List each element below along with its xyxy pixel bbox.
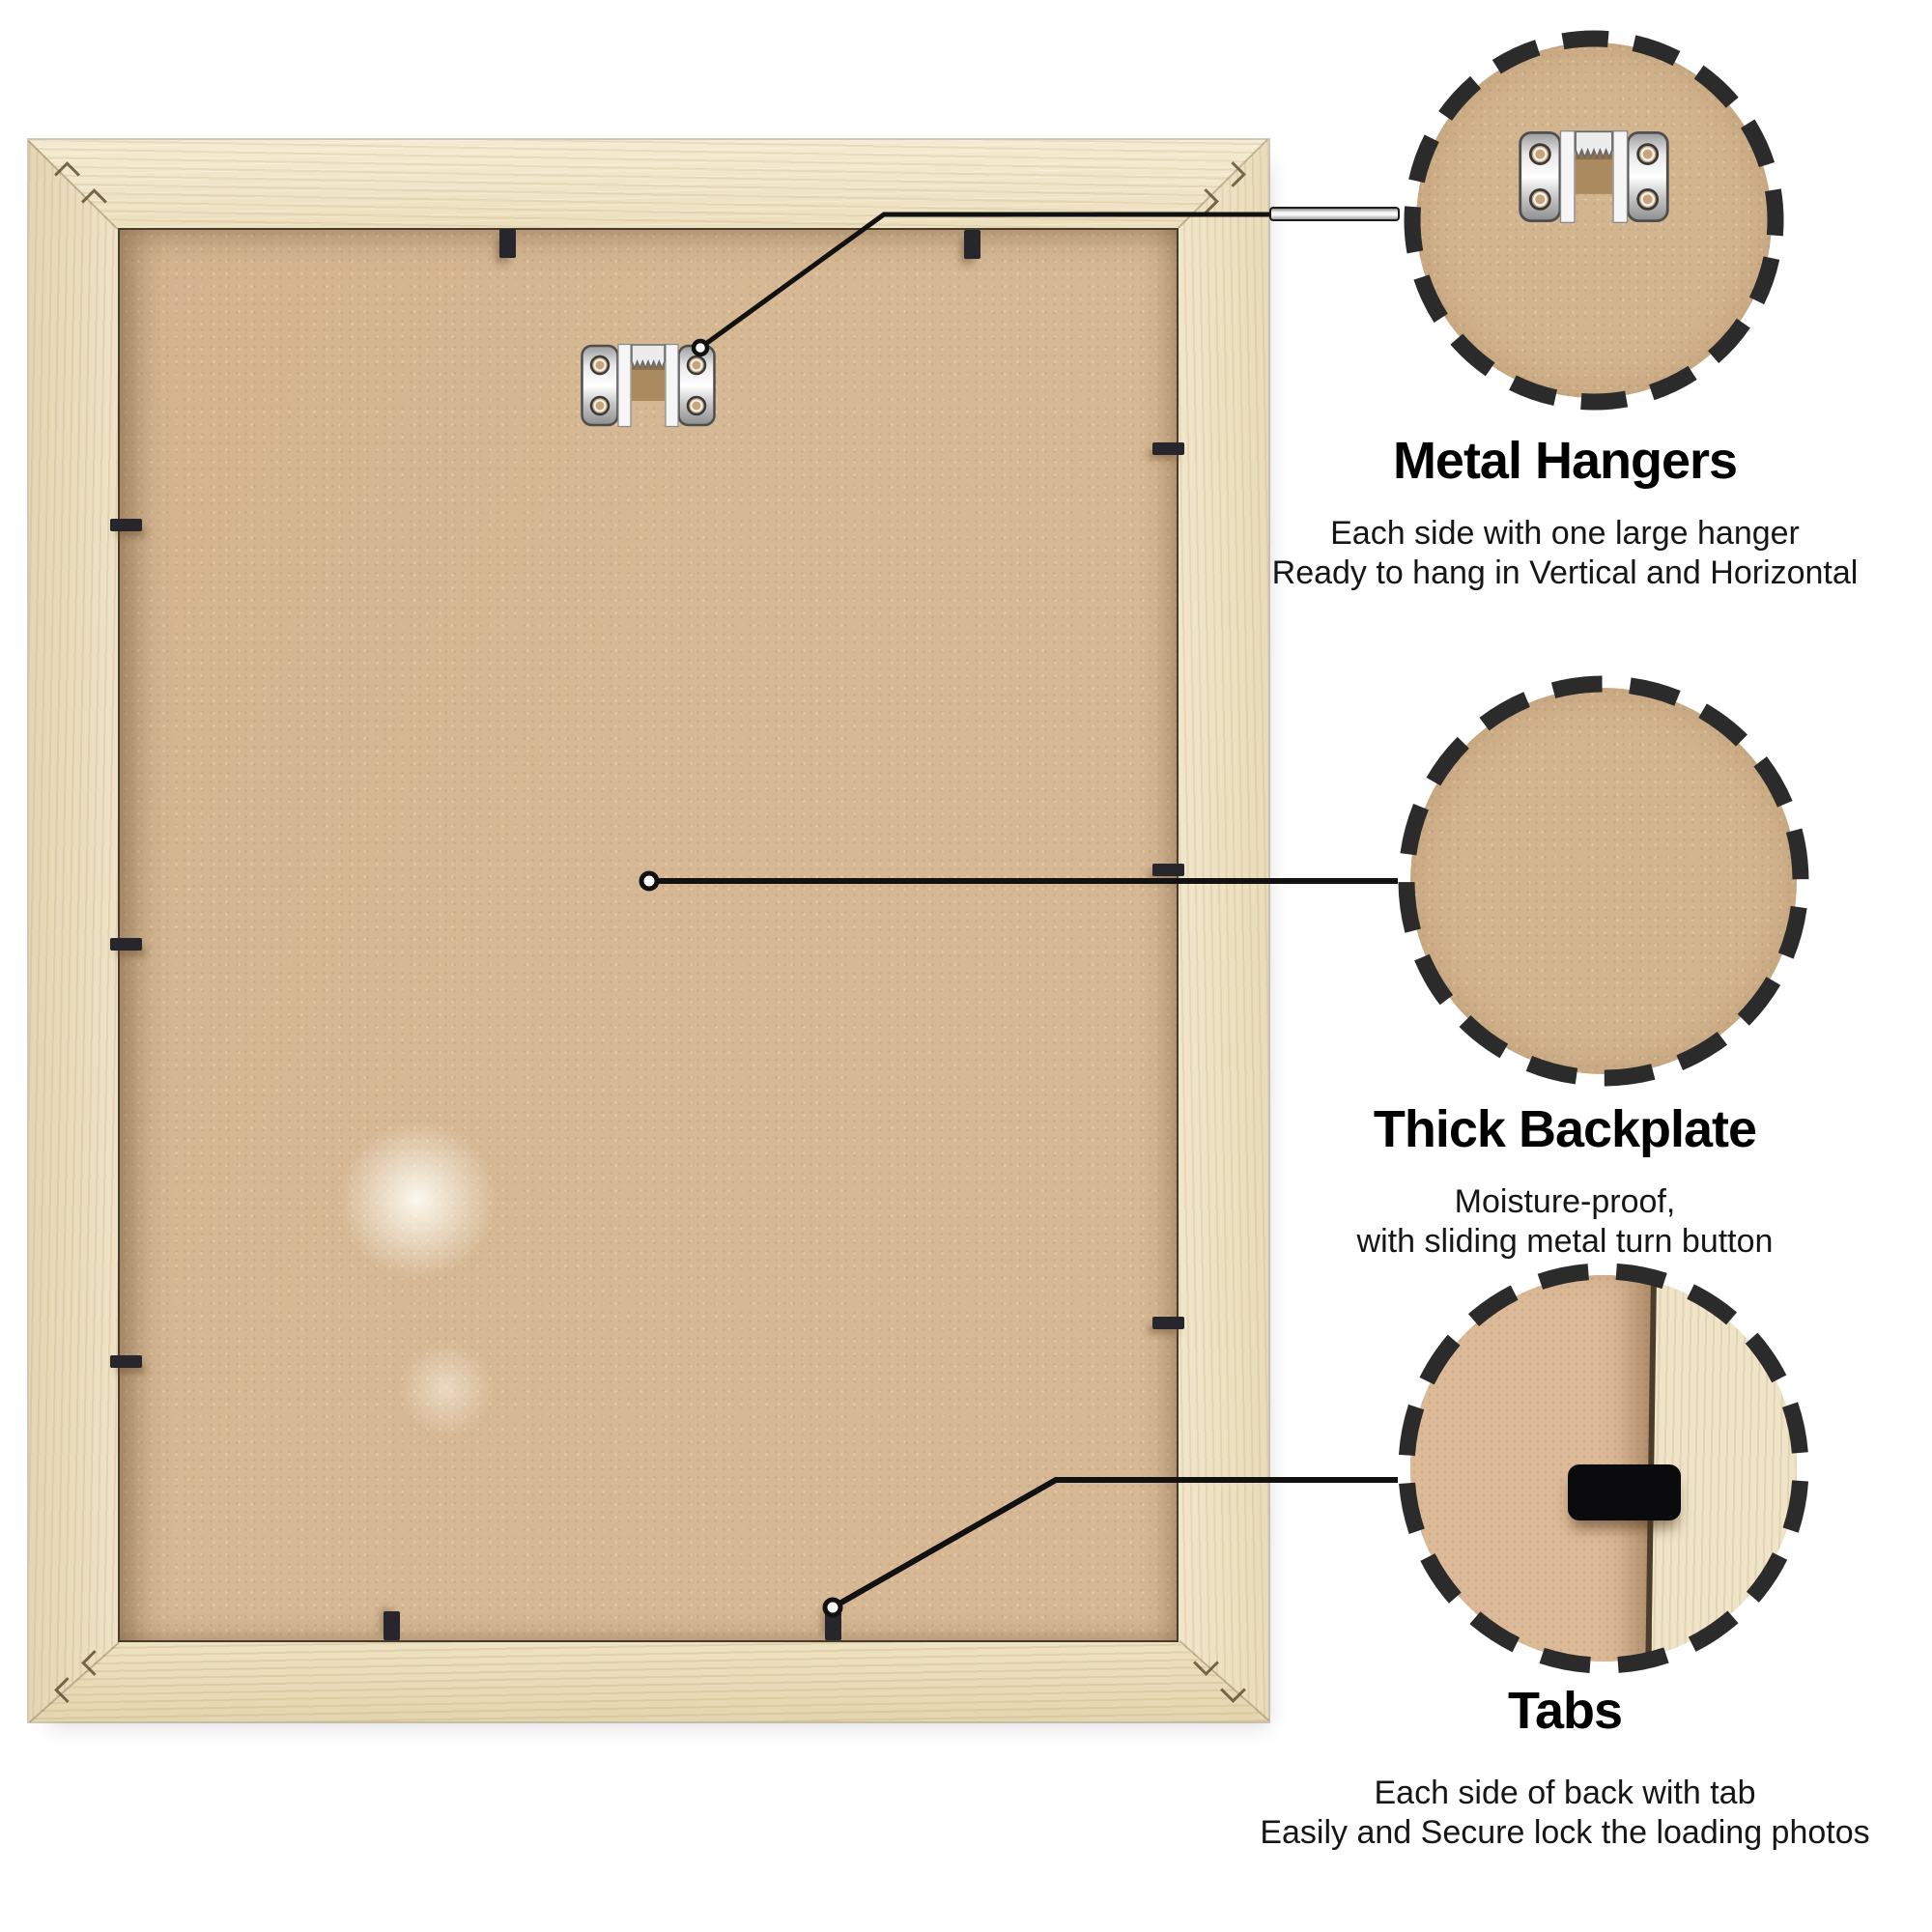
callout-circle-metal-hangers	[1403, 29, 1785, 412]
desc-line: Easily and Secure lock the loading photo…	[1198, 1813, 1932, 1853]
dashed-ring	[1396, 673, 1811, 1089]
callout-circle-thick-backplate	[1396, 673, 1811, 1089]
callout-desc-metal-hangers: Each side with one large hanger Ready to…	[1198, 514, 1932, 593]
product-infographic-frame-back: Metal Hangers Each side with one large h…	[0, 0, 1932, 1932]
callout-title-tabs: Tabs	[1198, 1681, 1932, 1741]
desc-line: Each side of back with tab	[1198, 1774, 1932, 1813]
callout-desc-tabs: Each side of back with tab Easily and Se…	[1198, 1774, 1932, 1853]
desc-line: Moisture-proof,	[1198, 1182, 1932, 1222]
desc-line: Each side with one large hanger	[1198, 514, 1932, 554]
desc-line: with sliding metal turn button	[1198, 1222, 1932, 1262]
callout-title-thick-backplate: Thick Backplate	[1198, 1099, 1932, 1159]
callout-desc-thick-backplate: Moisture-proof, with sliding metal turn …	[1198, 1182, 1932, 1262]
callout-circle-tabs	[1396, 1261, 1811, 1676]
dashed-ring	[1403, 29, 1785, 412]
desc-line: Ready to hang in Vertical and Horizontal	[1198, 554, 1932, 593]
dashed-ring	[1396, 1261, 1811, 1676]
callout-title-metal-hangers: Metal Hangers	[1198, 431, 1932, 491]
